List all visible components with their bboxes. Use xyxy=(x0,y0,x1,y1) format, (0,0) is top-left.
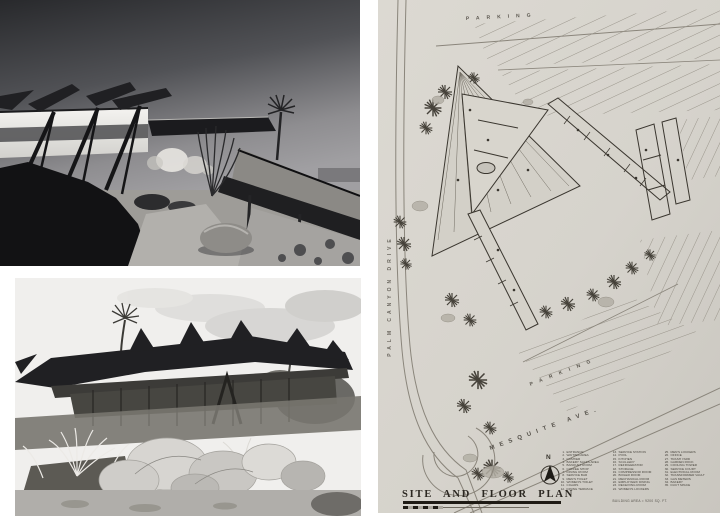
legend-item: 24.WOMEN'S LOCKERS xyxy=(611,488,663,491)
legend-column: 1.ENTRANCE2.WAITING AREA3.CASHIER4.BAKER… xyxy=(559,451,611,491)
north-label: N xyxy=(546,454,551,461)
site-plan-sheet: PARKING PARKING MESQUITE AVE. PALM CANYO… xyxy=(378,0,720,513)
title-underline xyxy=(403,501,561,504)
night-photo-art xyxy=(0,0,360,266)
legend-column: 13.SERVICE STATION14.POOL15.KITCHEN16.SC… xyxy=(611,451,663,491)
distant-building xyxy=(318,168,360,182)
plan-title: SITE AND FLOOR PLAN xyxy=(402,489,564,500)
site-plan-drawing xyxy=(378,0,720,513)
shrub xyxy=(134,194,170,210)
clerestory-band xyxy=(0,108,148,158)
legend-item: 35.DUCT SPACE xyxy=(663,484,715,487)
day-photo-art xyxy=(15,278,361,516)
scale-bar xyxy=(403,506,529,509)
building-area-note: BUILDING AREA = 9200 SQ. FT. xyxy=(592,499,688,503)
photo-day-exterior xyxy=(15,278,361,516)
street-label-palm-canyon: PALM CANYON DRIVE xyxy=(387,184,393,408)
legend-column: 25.MEN'S LOCKERS26.OFFICE27.TRASH YARD28… xyxy=(663,451,715,488)
legend-item: 12.DINING TERRACE xyxy=(559,488,611,491)
dark-rock xyxy=(311,492,361,516)
photo-night-exterior xyxy=(0,0,360,266)
